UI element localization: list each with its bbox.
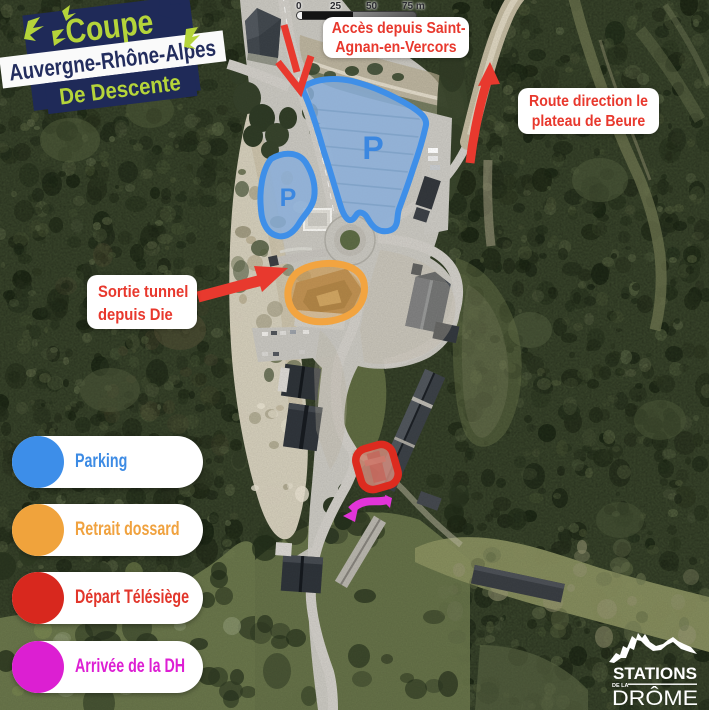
svg-text:STATIONS: STATIONS <box>613 664 697 683</box>
svg-text:P: P <box>280 184 297 212</box>
svg-text:P: P <box>362 130 383 166</box>
svg-text:DRÔME: DRÔME <box>612 687 698 710</box>
